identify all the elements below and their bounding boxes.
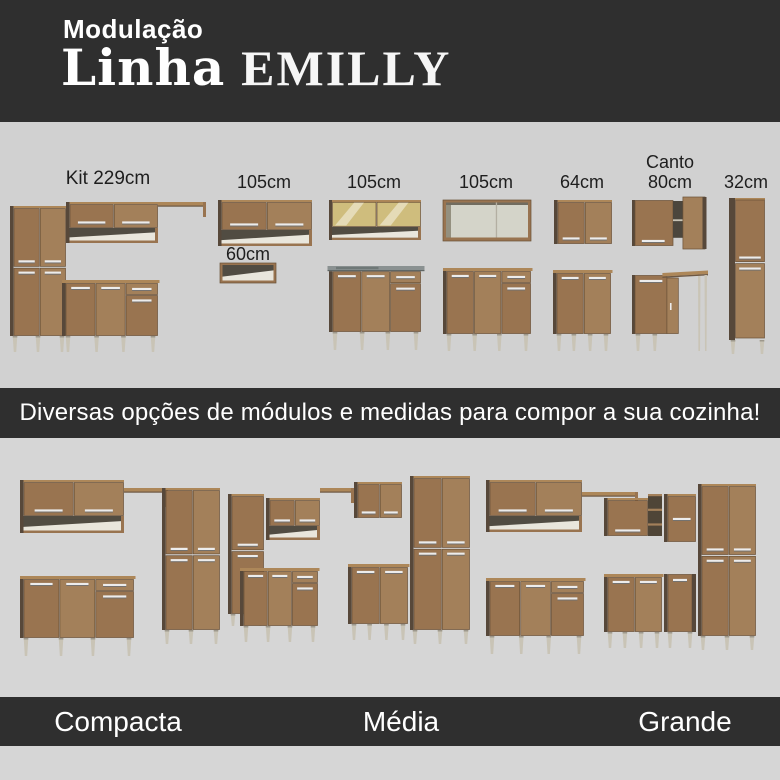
module-glass-cabinet-105-illustration [328,198,424,244]
module-corner-wall-80-illustration [630,194,712,250]
bottom-strip [0,746,780,780]
module-base-cabinet-105-illustration [440,266,536,354]
kitchen-label-grande: Grande [585,697,780,746]
module-kit-229-illustration [8,194,208,356]
module-tall-32-illustration [727,196,767,356]
module-label-64: 64cm [550,172,614,193]
module-wall-105-illustration [216,198,316,248]
header: Modulação Linha EMILLY [0,0,780,122]
module-sink-base-105-illustration [326,264,426,354]
module-label-canto-80: Canto 80cm [628,152,712,192]
page: Modulação Linha EMILLY Kit 229cm 105cm 6… [0,0,780,780]
kitchen-compacta-illustration [12,472,226,678]
modules-section: Kit 229cm 105cm 60cm 105cm 105cm 64cm Ca… [0,122,780,388]
kitchen-label-compacta: Compacta [18,697,218,746]
kitchen-media-illustration [224,466,474,656]
module-open-cabinet-105-illustration [442,198,534,244]
kitchen-grande-illustration [478,470,778,668]
banner: Diversas opções de módulos e medidas par… [0,388,780,438]
kitchens-section [0,438,780,697]
module-label-105-a: 105cm [214,172,314,193]
title-emilly: EMILLY [241,40,451,96]
module-label-105-c: 105cm [438,172,534,193]
kitchen-label-media: Média [301,697,501,746]
page-title: Linha EMILLY [61,40,451,96]
module-label-105-b: 105cm [326,172,422,193]
module-label-32: 32cm [722,172,770,193]
module-base-64-illustration [551,268,615,354]
banner-text: Diversas opções de módulos e medidas par… [20,399,761,427]
module-label-kit-229: Kit 229cm [8,168,208,190]
footer: Compacta Média Grande [0,697,780,746]
title-linha: Linha [61,38,225,97]
module-corner-base-80-illustration [630,266,712,354]
module-niche-60-illustration [219,262,277,284]
module-wall-64-illustration [553,198,613,246]
